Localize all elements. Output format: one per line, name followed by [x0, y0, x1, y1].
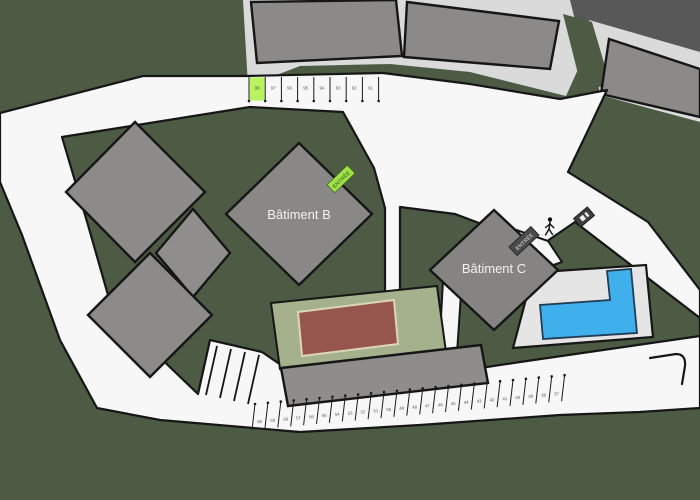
building-b-label: Bâtiment B: [267, 207, 331, 222]
parking-stall-dot: [434, 386, 437, 389]
parking-stall-number: 94: [320, 86, 325, 91]
parking-stall-dot: [305, 398, 308, 401]
site-plan-map: Bâtiment B Bâtiment C ENTRÉE ENTRÉE 9897…: [0, 0, 700, 500]
parking-stall-dot: [486, 381, 489, 384]
parking-stall-dot: [370, 392, 373, 395]
parking-stall-dot: [396, 390, 399, 393]
parking-stall-dot: [344, 394, 347, 397]
parking-stall-dot: [264, 100, 267, 103]
parking-stall-number: 95: [303, 86, 308, 91]
parking-stall-dot: [525, 378, 528, 381]
parking-stall-dot: [447, 385, 450, 388]
building-c-label: Bâtiment C: [462, 261, 526, 276]
parking-stall-dot: [409, 388, 412, 391]
parking-stall-dot: [357, 393, 360, 396]
parking-stall-dot: [499, 380, 502, 383]
parking-stall-number: 98: [255, 86, 260, 91]
parking-stall-number: 91: [368, 86, 373, 91]
parking-stall-dot: [318, 397, 321, 400]
parking-stall-dot: [538, 376, 541, 379]
parking-stall-dot: [473, 382, 476, 385]
parking-stall-dot: [313, 100, 316, 103]
parking-stall-number: 96: [287, 86, 292, 91]
parking-stall-dot: [267, 402, 270, 405]
parking-stall-dot: [361, 100, 364, 103]
site-plan-page: Bâtiment B Bâtiment C ENTRÉE ENTRÉE 9897…: [0, 0, 700, 500]
parking-stall-dot: [329, 100, 332, 103]
parking-stall-dot: [254, 403, 257, 406]
parking-stall-number: 93: [336, 86, 341, 91]
parking-stall-dot: [383, 391, 386, 394]
parking-stall-dot: [377, 100, 380, 103]
parking-stall-dot: [248, 100, 251, 103]
parking-stall-number: 92: [352, 86, 357, 91]
parking-stall-dot: [345, 100, 348, 103]
parking-stall-dot: [421, 387, 424, 390]
parking-stall-dot: [280, 100, 283, 103]
parking-stall-dot: [563, 374, 566, 377]
parking-stall-dot: [280, 400, 283, 403]
neighbour-building-1: [251, 0, 402, 63]
parking-stall-dot: [460, 384, 463, 387]
parking-stall-dot: [292, 399, 295, 402]
parking-stall-dot: [296, 100, 299, 103]
parking-stall-dot: [331, 396, 334, 399]
parking-stall-dot: [550, 375, 553, 378]
parking-stall-number: 97: [271, 86, 276, 91]
parking-stall-dot: [512, 379, 515, 382]
